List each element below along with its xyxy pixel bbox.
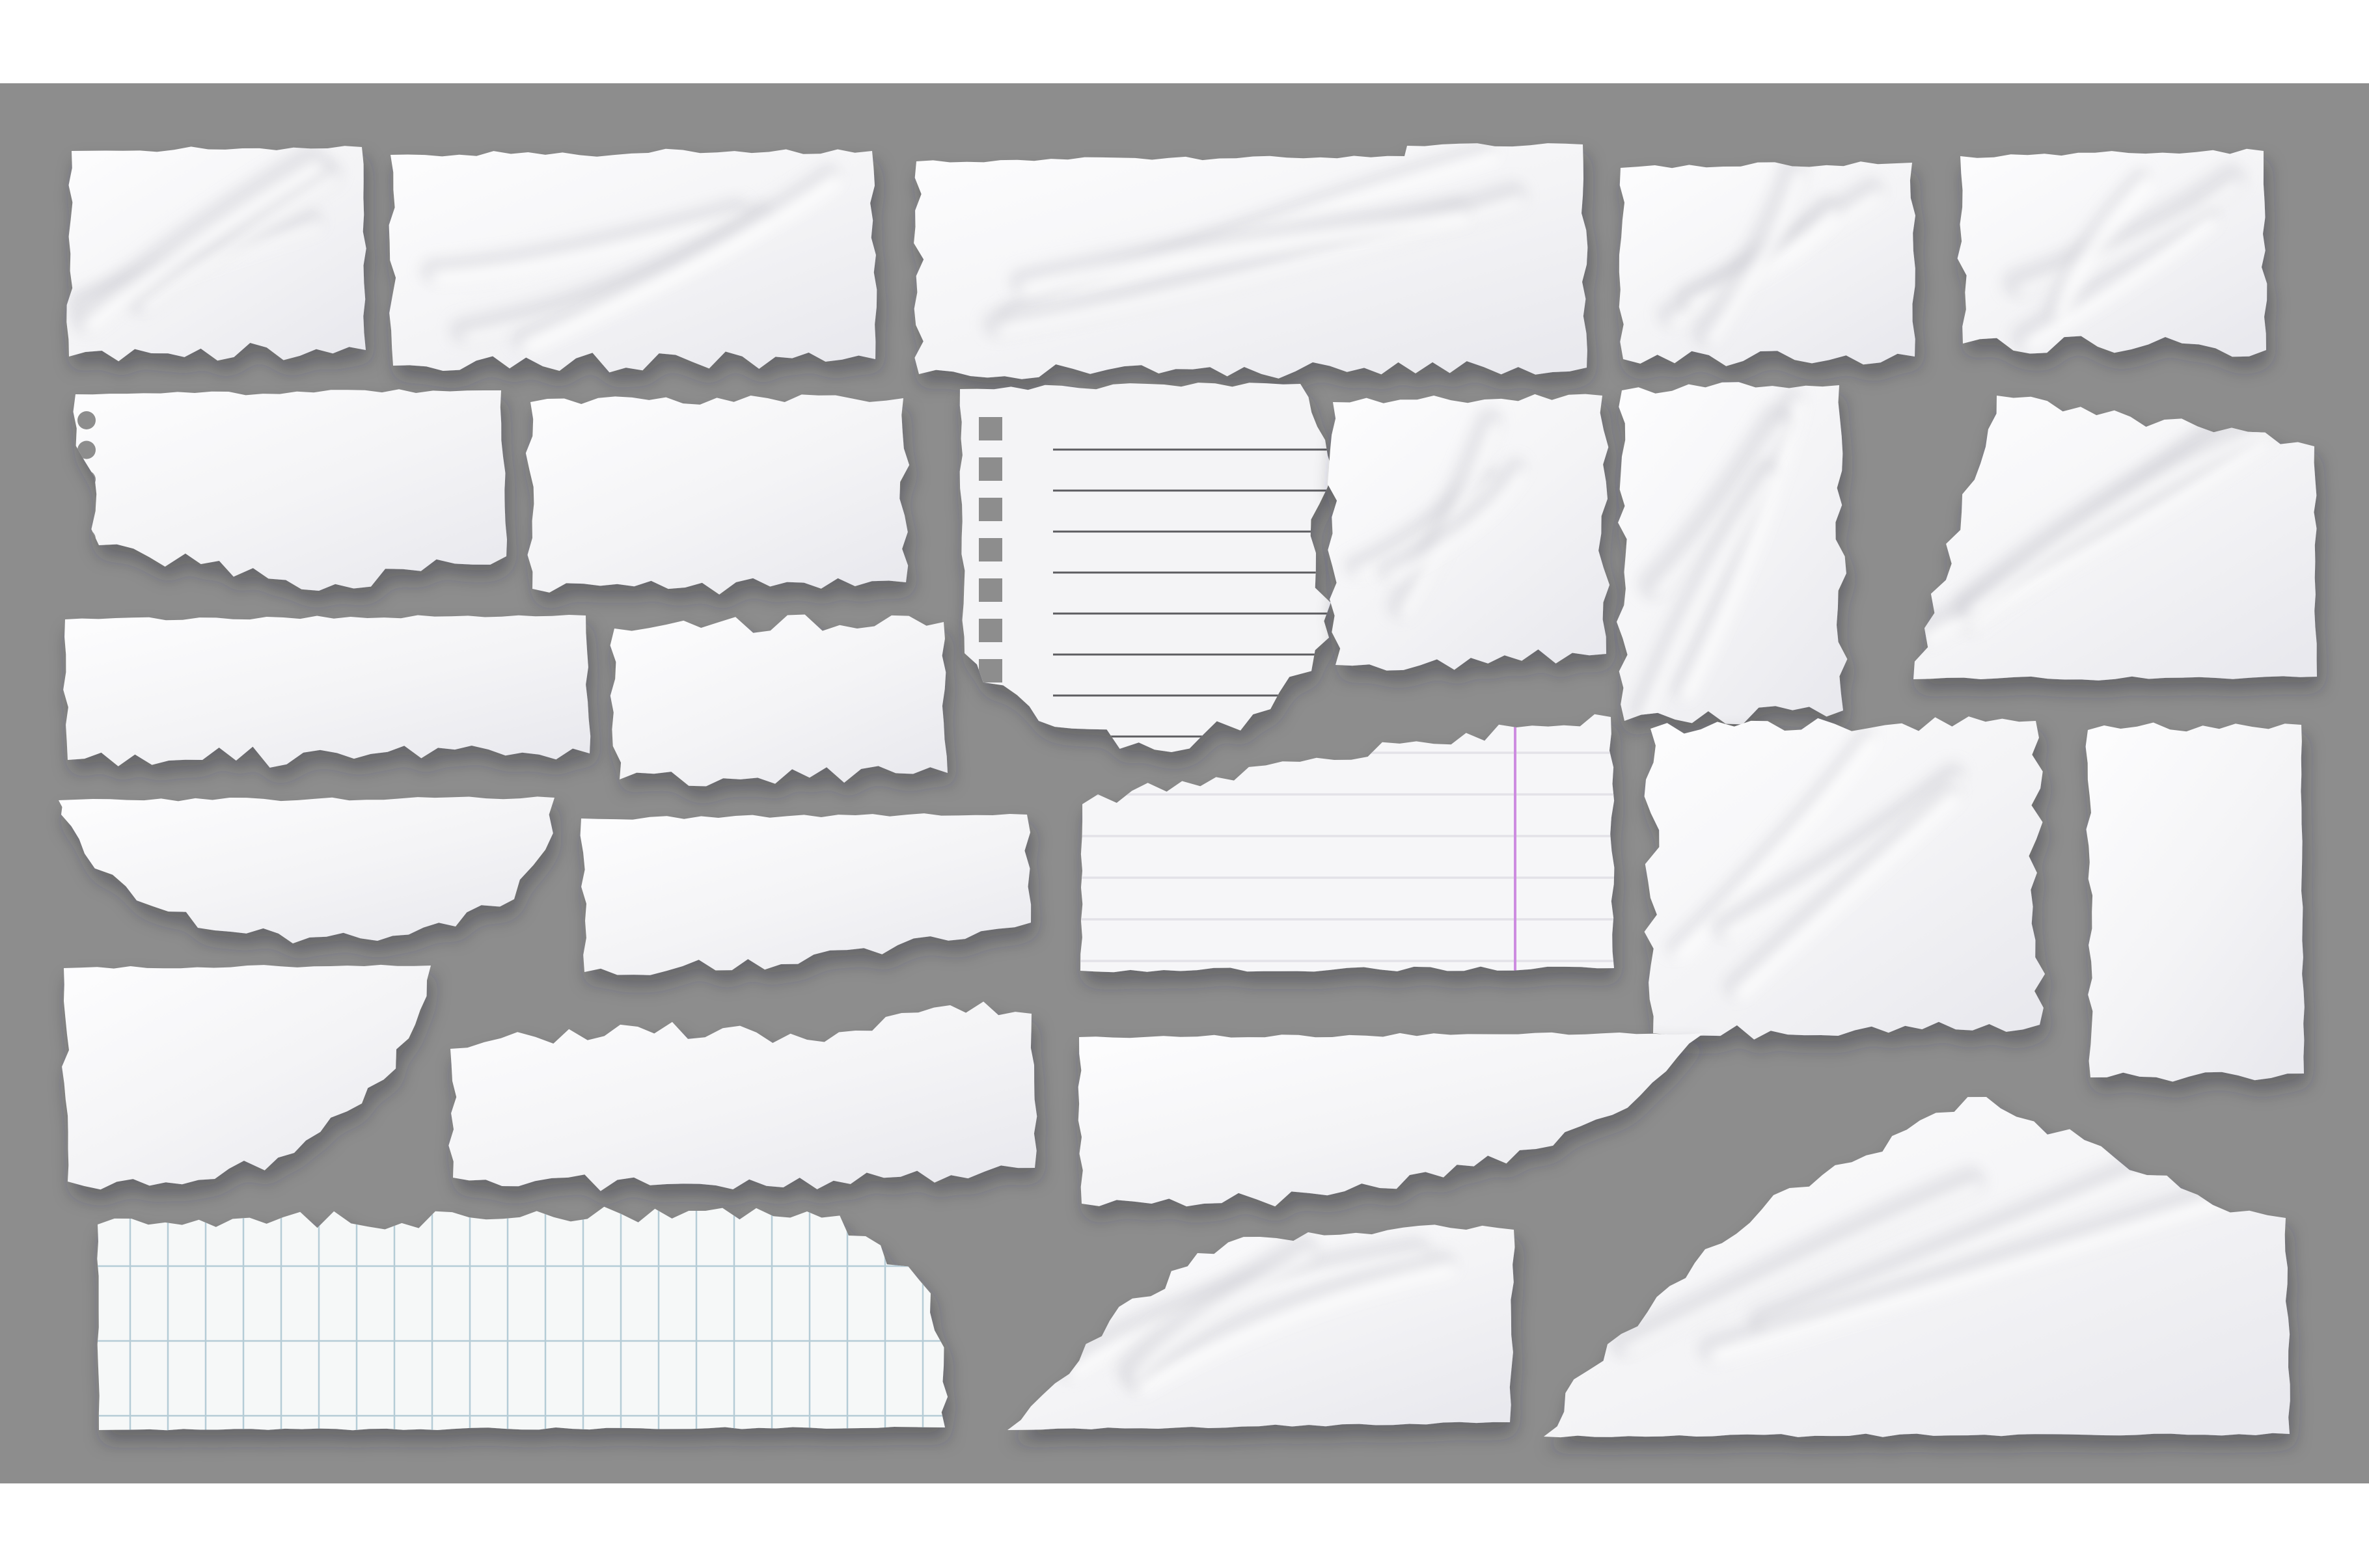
punch-hole-square [979, 417, 1002, 440]
paper-scrap-crumpled-row2-a [1328, 394, 1609, 671]
paper-shape [526, 394, 909, 594]
paper-scrap-crumpled-top-right-b [1958, 149, 2267, 357]
paper-scrap-torn-scrap-row3-right [610, 615, 948, 787]
paper-scrap-crumpled-rect-top-left [66, 146, 366, 361]
punch-hole-square [979, 619, 1002, 642]
paper-scrap-crumpled-row4-right [1645, 716, 2046, 1040]
paper-scrap-crumpled-top-right-a [1619, 161, 1915, 366]
paper-shape [63, 615, 590, 768]
paper-scrap-plain-wide-row3 [63, 615, 590, 768]
punch-hole-square [979, 457, 1002, 481]
illustration-stage [0, 0, 2369, 1568]
punch-hole-round [77, 411, 96, 429]
paper-scrap-plain-strip-row2 [526, 394, 909, 594]
paper-scrap-crumpled-wide-top [389, 149, 877, 373]
punch-hole-square [979, 538, 1002, 561]
punch-hole-square [979, 659, 1002, 683]
paper-shape [610, 615, 948, 787]
paper-shape [2086, 723, 2305, 1082]
paper-scrap-crumpled-large-top-center [914, 143, 1587, 379]
paper-scraps-illustration [0, 0, 2369, 1568]
punch-hole-square [979, 578, 1002, 602]
paper-scrap-crumpled-row2-b [1617, 382, 1847, 724]
punch-hole-square [979, 498, 1002, 521]
paper-shape [97, 1207, 948, 1431]
paper-scrap-narrow-strip-row4-right [2086, 723, 2305, 1082]
